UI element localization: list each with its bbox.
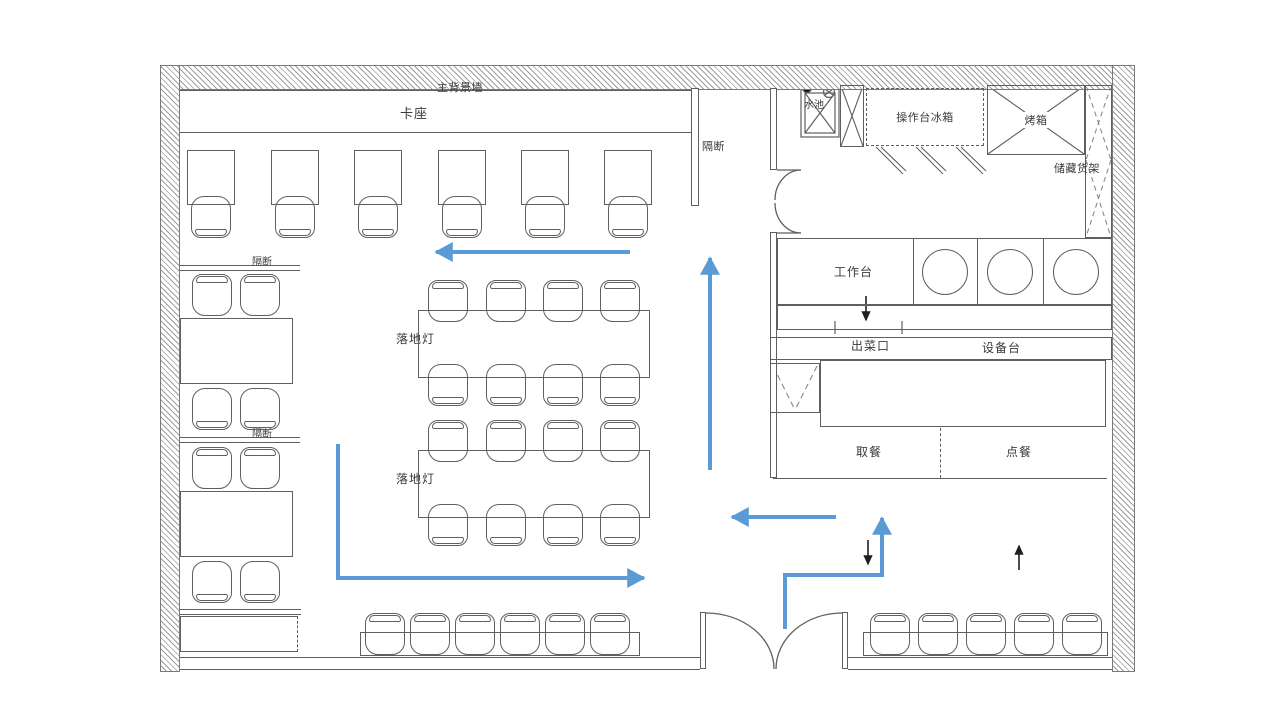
- chair: [428, 504, 468, 546]
- chair: [870, 613, 910, 655]
- counter-divider: [913, 238, 914, 305]
- chair: [455, 613, 495, 655]
- left-counter-bar: [180, 609, 301, 615]
- service-counter: [820, 360, 1106, 427]
- kitchen-door: [775, 170, 801, 233]
- serving-counter-band: [770, 337, 1112, 360]
- chair: [358, 196, 398, 238]
- chair: [608, 196, 648, 238]
- counter-divider: [977, 238, 978, 305]
- restaurant-floor-plan: 操作台冰箱 烤箱 主背景墙 卡座 隔断 隔断 隔断 落地灯 落地灯 水池 储藏货…: [0, 0, 1267, 713]
- chair: [428, 280, 468, 322]
- burner-icon: [987, 249, 1033, 295]
- kitchen-walkway-band: [777, 305, 1112, 330]
- chair: [192, 561, 232, 603]
- wall-right: [1112, 65, 1135, 672]
- main-background-wall-label: 主背景墙: [437, 82, 483, 94]
- partition-right-bar: [691, 88, 699, 206]
- chair: [918, 613, 958, 655]
- service-area-boundary: [773, 478, 1107, 479]
- storage-rack-label: 储藏货架: [1054, 163, 1100, 175]
- partition-left-bar-top: [180, 265, 300, 271]
- chair: [590, 613, 630, 655]
- prep-counter-fridge-label: 操作台冰箱: [896, 109, 954, 125]
- partition-right-label: 隔断: [702, 141, 725, 153]
- chair: [600, 364, 640, 406]
- chair: [1014, 613, 1054, 655]
- chair: [240, 274, 280, 316]
- pickup-area-label: 取餐: [856, 446, 882, 459]
- chair: [192, 388, 232, 430]
- chair: [486, 420, 526, 462]
- chair: [525, 196, 565, 238]
- door-jamb-right: [842, 612, 848, 669]
- pickup-order-divider: [940, 428, 941, 478]
- sink-label: 水池: [804, 100, 824, 111]
- counter-divider: [1043, 238, 1044, 305]
- chair: [486, 504, 526, 546]
- chair: [410, 613, 450, 655]
- table: [180, 318, 293, 384]
- chair: [428, 364, 468, 406]
- chair: [365, 613, 405, 655]
- storage-rack: [1085, 85, 1112, 238]
- fridge-flaps-icon: [876, 147, 986, 174]
- partition-left-bottom-label: 隔断: [252, 429, 272, 440]
- chair: [600, 420, 640, 462]
- partition-left-top-label: 隔断: [252, 257, 272, 268]
- chair: [543, 420, 583, 462]
- prep-counter-fridge: 操作台冰箱: [866, 88, 984, 146]
- chair: [240, 388, 280, 430]
- wall-left: [160, 65, 180, 672]
- chair: [500, 613, 540, 655]
- tall-cabinet: [840, 85, 864, 147]
- wall-bottom-right: [848, 657, 1112, 670]
- chair: [275, 196, 315, 238]
- chair: [600, 280, 640, 322]
- chair: [428, 420, 468, 462]
- chair: [442, 196, 482, 238]
- wall-bottom-left: [180, 657, 700, 670]
- table: [180, 491, 293, 557]
- chair: [192, 447, 232, 489]
- chair: [543, 364, 583, 406]
- order-area-label: 点餐: [1006, 446, 1032, 459]
- chair: [240, 447, 280, 489]
- booth-band: [180, 90, 692, 133]
- partition-left-bar-bottom: [180, 437, 300, 443]
- equipment-counter-label: 设备台: [982, 342, 1021, 355]
- left-bottom-counter: [180, 616, 298, 652]
- booth-seating-label: 卡座: [400, 107, 428, 121]
- chair: [192, 274, 232, 316]
- kitchen-wall-upper: [770, 88, 777, 170]
- burner-icon: [922, 249, 968, 295]
- chair: [543, 504, 583, 546]
- oven-label: 烤箱: [1022, 112, 1051, 128]
- chair: [486, 280, 526, 322]
- shelf-unit: [770, 363, 820, 413]
- entrance-door: [706, 613, 842, 669]
- door-jamb-left: [700, 612, 706, 669]
- chair: [966, 613, 1006, 655]
- chair: [240, 561, 280, 603]
- chair: [486, 364, 526, 406]
- burner-icon: [1053, 249, 1099, 295]
- chair: [1062, 613, 1102, 655]
- serving-window-label: 出菜口: [851, 340, 890, 353]
- chair: [545, 613, 585, 655]
- chair: [600, 504, 640, 546]
- work-counter-label: 工作台: [834, 266, 873, 279]
- chair: [543, 280, 583, 322]
- oven: 烤箱: [987, 85, 1085, 155]
- chair: [191, 196, 231, 238]
